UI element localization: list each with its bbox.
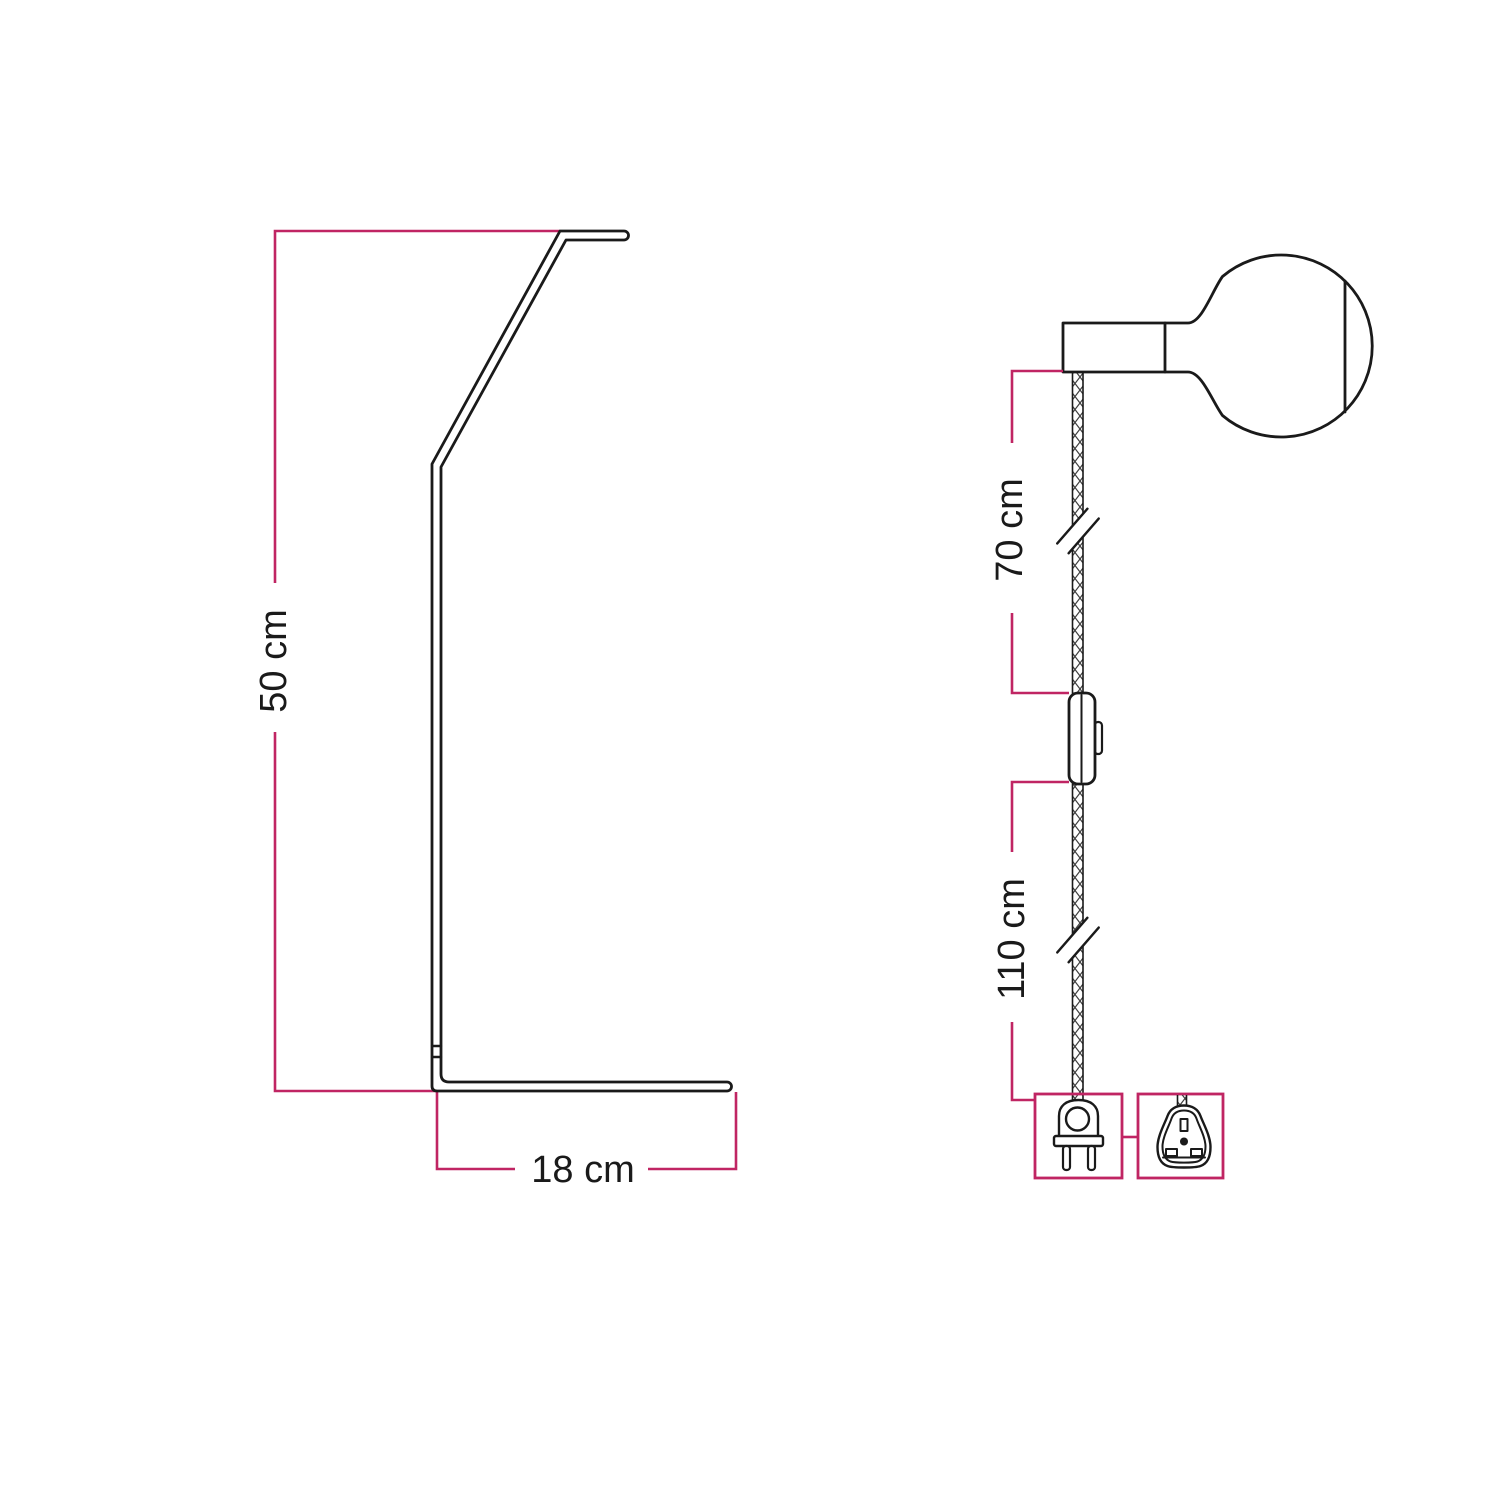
cord-lower-length-label: 110 cm bbox=[993, 878, 1031, 1000]
dimension-diagram: 50 cm 18 cm 70 cm 110 cm bbox=[0, 0, 1500, 1500]
lamp-stand-profile-icon bbox=[432, 231, 732, 1091]
inline-switch-icon bbox=[1069, 693, 1102, 784]
uk-plug-pin-dot bbox=[1180, 1138, 1188, 1146]
diagram-svg bbox=[0, 0, 1500, 1500]
uk-plug-adapter-icon bbox=[1158, 1095, 1211, 1168]
cord-upper-length-label: 70 cm bbox=[991, 478, 1029, 581]
lamp-socket-icon bbox=[1063, 323, 1165, 372]
globe-bulb-icon bbox=[1165, 255, 1372, 437]
europlug-icon bbox=[1054, 1100, 1103, 1170]
stand-base-depth-label: 18 cm bbox=[531, 1151, 634, 1189]
stand-height-label: 50 cm bbox=[255, 609, 293, 712]
dimension-line-height-50 bbox=[275, 231, 560, 1091]
